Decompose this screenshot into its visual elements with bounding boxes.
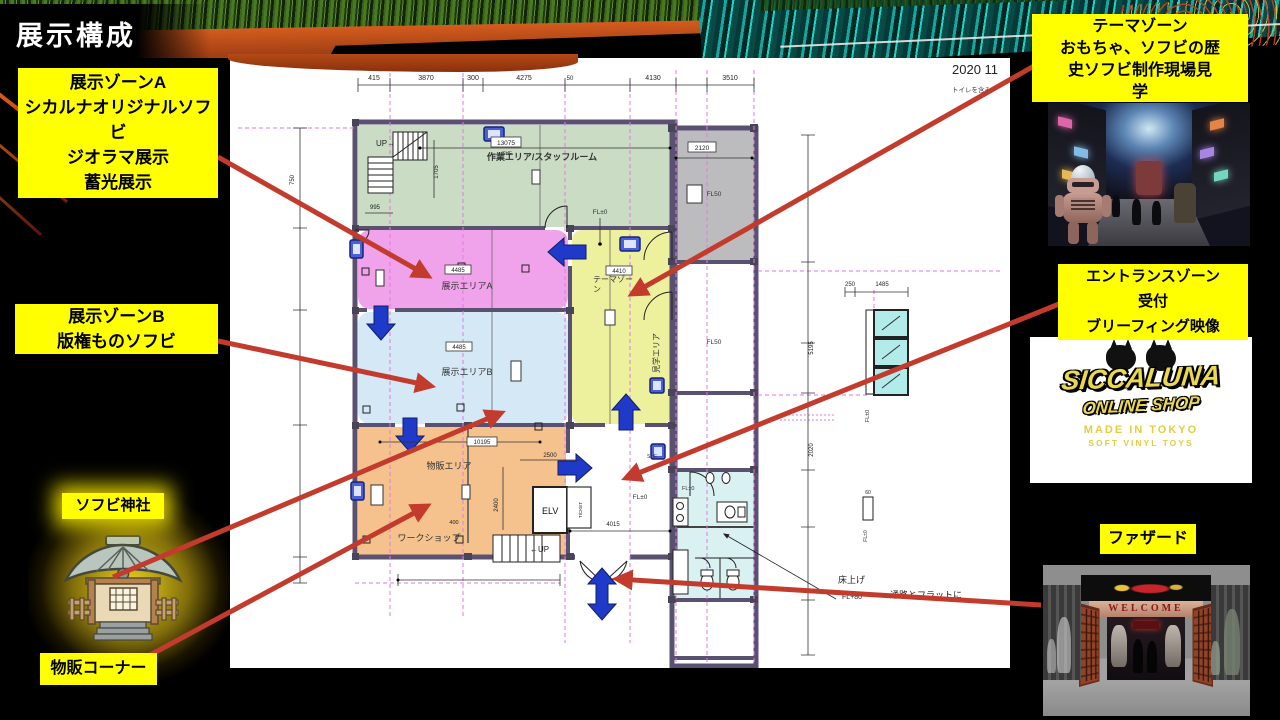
visitor-silhouette <box>1132 199 1141 225</box>
label-fl0-green: FL±0 <box>593 209 608 216</box>
sign-logo-art <box>1103 581 1189 595</box>
callout-sales-corner: 物販コーナー <box>40 653 157 685</box>
family-silhouette-child-right <box>1211 641 1220 675</box>
interior-sign <box>1133 621 1159 629</box>
dim-400: 400 <box>449 520 458 526</box>
statue-right <box>1165 625 1181 667</box>
facade-image: WELCOME <box>1043 565 1250 716</box>
store-door-left <box>1079 603 1099 687</box>
siccaluna-logo-image: SICCALUNA ONLINE SHOP MADE IN TOKYO SOFT… <box>1030 337 1252 483</box>
dim-13075: 13075 <box>497 140 515 147</box>
callout-theme-zone: テーマゾーン おもちゃ、ソフビの歴 史ソフビ制作現場見 学 <box>1032 14 1248 102</box>
storefront: WELCOME <box>1081 575 1211 680</box>
dim-415: 415 <box>368 75 380 82</box>
callout-shrine: ソフビ神社 <box>62 493 164 519</box>
callout-line: 史ソフビ制作現場見 <box>1032 60 1248 82</box>
robot-eyes <box>1072 182 1094 187</box>
display-case <box>1210 118 1224 130</box>
stairs-up-label-top: UP→ <box>376 139 395 148</box>
dim-2020: 2020 <box>809 443 815 457</box>
plan-date: 2020 11 <box>952 62 998 77</box>
callout-line: 展示ゾーンA <box>18 70 218 95</box>
label-floor-level: FL+80 <box>842 594 862 601</box>
shrine-illustration <box>58 528 188 648</box>
plan-note: トイレを含み <box>952 85 992 94</box>
stairs-up-label-bottom: ←UP <box>530 545 549 554</box>
family-silhouette-adult-left <box>1057 617 1071 673</box>
image-building-right <box>1192 103 1250 220</box>
callout-line: テーマゾーン <box>1032 16 1248 38</box>
floor-plan: UP→ ←UP ELV TICKET <box>230 58 1010 668</box>
robot-leg-left <box>1068 222 1079 244</box>
family-silhouette-child-left <box>1047 639 1056 673</box>
robot-grill <box>1071 198 1095 210</box>
room-theme-zone <box>572 230 671 424</box>
dim-2400: 2400 <box>494 498 500 512</box>
callout-line: 版権ものソフビ <box>15 329 218 354</box>
logo-line-3: MADE IN TOKYO <box>1030 424 1252 436</box>
dim-4015: 4015 <box>606 522 620 528</box>
ac-icon <box>351 482 364 500</box>
slide-exhibition-layout: { "slide": { "title": "展示構成" }, "callout… <box>0 0 1280 720</box>
callout-line: ジオラマ展示 <box>18 145 218 170</box>
dim-2500: 2500 <box>543 453 557 459</box>
welcome-banner: WELCOME <box>1089 601 1203 617</box>
dim-250: 250 <box>845 282 856 288</box>
robot-arm-left <box>1055 195 1064 217</box>
family-silhouette-adult-right <box>1224 609 1240 675</box>
robot-arm-right <box>1102 195 1111 217</box>
callout-line: シカルナオリジナルソフ <box>18 95 218 120</box>
visitor-silhouette <box>1112 195 1120 217</box>
label-exhibit-a: 展示エリアA <box>441 281 492 291</box>
ac-icon <box>620 237 640 251</box>
robot-dome <box>1071 165 1095 179</box>
dim-50: 50 <box>567 76 574 82</box>
person-silhouette <box>1147 641 1157 673</box>
label-fl50-white: FL50 <box>707 339 722 346</box>
visitor-silhouette <box>1152 201 1161 225</box>
label-floor-flat: 通路とフラットに <box>890 589 962 600</box>
callout-facade: ファザード <box>1100 524 1196 554</box>
shf-label: SHF <box>647 454 657 460</box>
dim-3870: 3870 <box>418 75 434 82</box>
label-fl0-window: FL±0 <box>865 410 871 423</box>
callout-line: おもちゃ、ソフビの歴 <box>1032 38 1248 60</box>
callout-line: エントランスゾーン <box>1058 264 1248 289</box>
stairs-lower <box>493 535 560 562</box>
callout-line: 学 <box>1032 82 1248 102</box>
label-work-area: 作業エリア/スタッフルーム <box>487 151 597 162</box>
dim-1485: 1485 <box>875 282 889 288</box>
ticket-label: TICKET <box>578 502 583 519</box>
ac-icon <box>650 378 664 393</box>
dim-5195: 5195 <box>809 341 815 355</box>
dim-300: 300 <box>467 75 479 82</box>
callout-line: 蓄光展示 <box>18 170 218 195</box>
robot-figure <box>1056 165 1110 246</box>
label-theme-zone-2: ン <box>593 285 601 294</box>
callout-line: ブリーフィング映像 <box>1058 314 1248 339</box>
dim-4485a: 4485 <box>451 268 465 274</box>
entrance-gap <box>575 552 630 561</box>
ac-icon <box>350 240 363 258</box>
dim-60: 60 <box>865 490 871 496</box>
dim-10195: 10195 <box>474 440 491 446</box>
display-case <box>1074 146 1088 158</box>
page-title: 展示構成 <box>16 14 136 53</box>
callout-zone-b: 展示ゾーンB 版権ものソフビ <box>15 304 218 354</box>
callout-entrance-zone: エントランスゾーン 受付 ブリーフィング映像 <box>1058 264 1248 340</box>
label-floor-raise: 床上げ <box>838 574 865 585</box>
logo-line-4: SOFT VINYL TOYS <box>1030 438 1252 448</box>
statue-left <box>1111 625 1127 667</box>
label-fl0-entry: FL±0 <box>633 494 648 501</box>
image-center-display <box>1136 161 1162 195</box>
store-interior <box>1107 617 1185 680</box>
dim-2120: 2120 <box>695 145 710 152</box>
display-case <box>1058 116 1072 128</box>
dim-4485b: 4485 <box>452 345 466 351</box>
dim-750: 750 <box>290 174 296 185</box>
elevator-label: ELV <box>542 506 558 516</box>
label-fl0-window2: FL±0 <box>863 530 869 542</box>
callout-line: 受付 <box>1058 289 1248 314</box>
dim-3510: 3510 <box>722 75 738 82</box>
label-fl0-toilet: FL±0 <box>682 486 695 492</box>
store-sign <box>1081 575 1211 601</box>
robot-leg-right <box>1087 222 1098 244</box>
label-tour-area: 見学エリア <box>651 333 661 373</box>
callout-line: ビ <box>18 120 218 145</box>
label-exhibit-b: 展示エリアB <box>441 367 492 377</box>
display-case <box>1214 169 1228 181</box>
dim-995: 995 <box>370 205 381 211</box>
label-fl50-gray: FL50 <box>707 191 722 198</box>
callout-line: 展示ゾーンB <box>15 304 218 329</box>
label-workshop: ワークショップ <box>397 533 460 543</box>
dim-1705: 1705 <box>434 165 440 179</box>
display-case <box>1200 147 1214 159</box>
dim-4130: 4130 <box>645 75 661 82</box>
store-door-right <box>1193 603 1213 687</box>
dim-4275: 4275 <box>516 75 532 82</box>
theme-zone-image <box>1048 103 1250 246</box>
monster-figure <box>1174 183 1196 223</box>
callout-zone-a: 展示ゾーンA シカルナオリジナルソフ ビ ジオラマ展示 蓄光展示 <box>18 68 218 198</box>
label-shop-area: 物販エリア <box>426 460 471 471</box>
person-silhouette <box>1133 639 1143 673</box>
label-theme-zone-1: テーマゾー <box>593 275 633 284</box>
